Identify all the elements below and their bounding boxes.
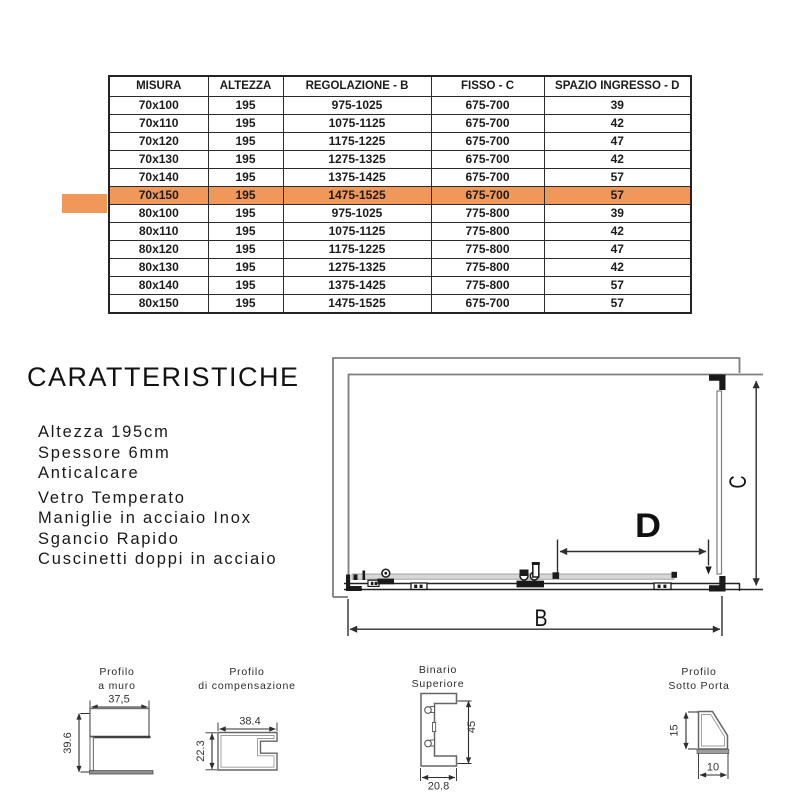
table-cell: 70x140: [109, 168, 208, 186]
table-cell: 675-700: [431, 114, 544, 132]
table-header-row: MISURAALTEZZAREGOLAZIONE - BFISSO - CSPA…: [109, 76, 691, 96]
features-list: Altezza 195cmSpessore 6mmAnticalcareVetr…: [38, 422, 277, 570]
table-cell: 195: [208, 186, 283, 204]
table-cell: 195: [208, 132, 283, 150]
down-arrow: [705, 567, 711, 575]
spec-table: MISURAALTEZZAREGOLAZIONE - BFISSO - CSPA…: [108, 75, 692, 314]
table-cell: 195: [208, 114, 283, 132]
feature-item: Cuscinetti doppi in acciaio: [38, 549, 277, 570]
table-cell: 195: [208, 96, 283, 114]
column-header: REGOLAZIONE - B: [283, 76, 431, 96]
table-cell: 57: [544, 276, 691, 294]
dimension-value: 39.6: [62, 732, 74, 753]
table-cell: 675-700: [431, 294, 544, 313]
table-cell: 1075-1125: [283, 222, 431, 240]
table-cell: 195: [208, 222, 283, 240]
profile-title: Sotto Porta: [668, 680, 729, 692]
table-cell: 775-800: [431, 258, 544, 276]
table-cell: 675-700: [431, 96, 544, 114]
bottom-rail: [344, 584, 763, 592]
section-title: CARATTERISTICHE: [27, 362, 300, 393]
column-header: FISSO - C: [431, 76, 544, 96]
feature-item: Spessore 6mm: [38, 443, 277, 464]
table-cell: 975-1025: [283, 96, 431, 114]
table-cell: 1475-1525: [283, 186, 431, 204]
door-hardware: [346, 375, 726, 592]
dimension-value: 37,5: [108, 694, 129, 706]
table-cell: 1275-1325: [283, 150, 431, 168]
table-row: 80x1301951275-1325775-80042: [109, 258, 691, 276]
table-row: 70x1301951275-1325675-70042: [109, 150, 691, 168]
table-row: 80x1501951475-1525675-70057: [109, 294, 691, 313]
table-cell: 1075-1125: [283, 114, 431, 132]
table-cell: 80x120: [109, 240, 208, 258]
table-cell: 57: [544, 186, 691, 204]
profile-title: a muro: [98, 680, 135, 692]
dimension-label-c: C: [725, 476, 752, 489]
profile-binario-superiore: Binario Superiore 45 20.8: [412, 664, 478, 793]
profile-title: Profilo: [99, 666, 134, 678]
table-cell: 39: [544, 204, 691, 222]
sliding-door-glass: [352, 574, 674, 579]
table-row: 70x1101951075-1125675-70042: [109, 114, 691, 132]
dimension-value: 22.3: [195, 740, 207, 761]
table-cell: 42: [544, 114, 691, 132]
profile-a-muro: Profilo a muro 37,5 39.6: [62, 666, 153, 774]
table-row: 80x1401951375-1425775-80057: [109, 276, 691, 294]
table-cell: 195: [208, 258, 283, 276]
dimension-value: 38.4: [239, 716, 260, 728]
table-cell: 70x120: [109, 132, 208, 150]
dimension-value: 10: [707, 762, 719, 774]
table-cell: 70x150: [109, 186, 208, 204]
table-cell: 195: [208, 240, 283, 258]
feature-item: Maniglie in acciaio Inox: [38, 508, 277, 529]
dimension-label-b: B: [535, 605, 548, 632]
table-cell: 80x110: [109, 222, 208, 240]
table-cell: 1475-1525: [283, 294, 431, 313]
glass-panel-outlines: [333, 358, 763, 597]
table-cell: 1375-1425: [283, 276, 431, 294]
dimension-value: 15: [669, 724, 681, 736]
table-cell: 1275-1325: [283, 258, 431, 276]
table-cell: 80x140: [109, 276, 208, 294]
table-cell: 70x100: [109, 96, 208, 114]
feature-item: Vetro Temperato: [38, 488, 277, 509]
profile-sotto-porta: Profilo Sotto Porta 15 10: [668, 666, 729, 779]
profile-compensazione: Profilo di compensazione 38.4 22.3: [195, 666, 296, 770]
table-cell: 80x130: [109, 258, 208, 276]
table-cell: 195: [208, 294, 283, 313]
table-cell: 775-800: [431, 222, 544, 240]
table-cell: 70x110: [109, 114, 208, 132]
column-header: SPAZIO INGRESSO - D: [544, 76, 691, 96]
table-cell: 47: [544, 132, 691, 150]
highlight-marker: [62, 194, 107, 213]
profile-sections: Profilo a muro 37,5 39.6 Profilo di comp…: [0, 650, 800, 800]
table-cell: 47: [544, 240, 691, 258]
table-cell: 1375-1425: [283, 168, 431, 186]
table-cell: 42: [544, 258, 691, 276]
spec-table-body: 70x100195975-1025675-7003970x1101951075-…: [109, 96, 691, 313]
table-cell: 195: [208, 168, 283, 186]
table-cell: 1175-1225: [283, 240, 431, 258]
table-cell: 195: [208, 150, 283, 168]
table-cell: 775-800: [431, 240, 544, 258]
table-cell: 675-700: [431, 186, 544, 204]
table-cell: 80x100: [109, 204, 208, 222]
profile-title: di compensazione: [198, 680, 295, 692]
profile-title: Profilo: [229, 666, 264, 678]
table-cell: 1175-1225: [283, 132, 431, 150]
enclosure-diagram: D B C: [330, 350, 800, 660]
dimension-lines: [348, 381, 756, 636]
table-cell: 775-800: [431, 204, 544, 222]
table-row: 70x1401951375-1425675-70057: [109, 168, 691, 186]
dimension-label-d: D: [635, 507, 661, 545]
table-cell: 975-1025: [283, 204, 431, 222]
table-cell: 675-700: [431, 168, 544, 186]
table-row: 70x100195975-1025675-70039: [109, 96, 691, 114]
table-cell: 195: [208, 276, 283, 294]
table-cell: 775-800: [431, 276, 544, 294]
dimension-value: 20.8: [428, 781, 449, 793]
table-cell: 42: [544, 150, 691, 168]
table-cell: 70x130: [109, 150, 208, 168]
table-row: 80x1101951075-1125775-80042: [109, 222, 691, 240]
table-row: 80x100195975-1025775-80039: [109, 204, 691, 222]
feature-item: Sgancio Rapido: [38, 529, 277, 550]
dimension-value: 45: [466, 721, 478, 733]
profile-title: Profilo: [681, 666, 716, 678]
table-cell: 57: [544, 294, 691, 313]
table-cell: 675-700: [431, 150, 544, 168]
table-cell: 39: [544, 96, 691, 114]
column-header: MISURA: [109, 76, 208, 96]
feature-item: Altezza 195cm: [38, 422, 277, 443]
profile-title: Binario: [419, 664, 457, 676]
table-row: 80x1201951175-1225775-80047: [109, 240, 691, 258]
table-cell: 675-700: [431, 132, 544, 150]
table-cell: 80x150: [109, 294, 208, 313]
table-row: 70x1201951175-1225675-70047: [109, 132, 691, 150]
table-cell: 195: [208, 204, 283, 222]
table-cell: 57: [544, 168, 691, 186]
table-row: 70x1501951475-1525675-70057: [109, 186, 691, 204]
table-cell: 42: [544, 222, 691, 240]
feature-item: Anticalcare: [38, 463, 277, 484]
profile-title: Superiore: [412, 678, 465, 690]
column-header: ALTEZZA: [208, 76, 283, 96]
